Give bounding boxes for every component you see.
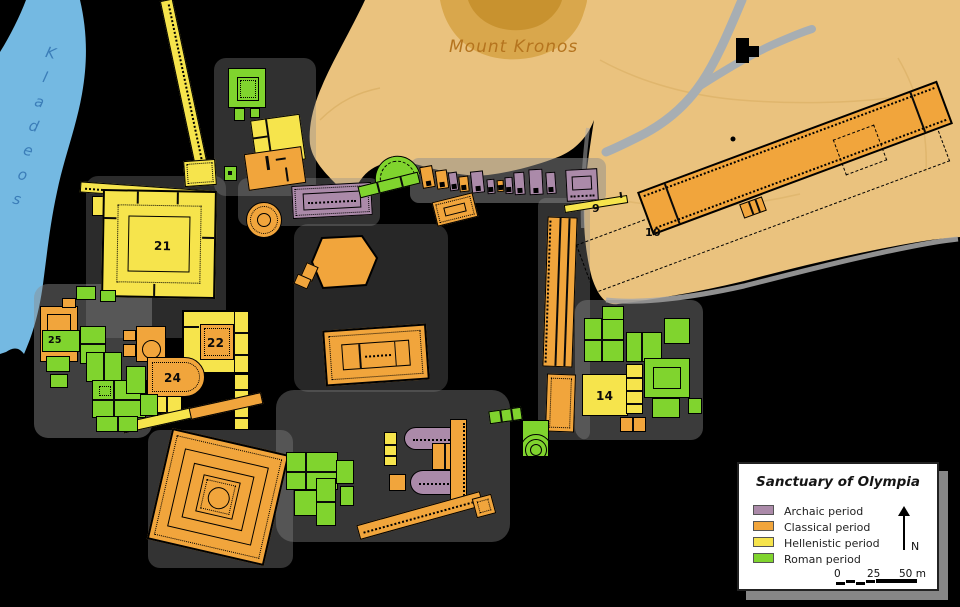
roman-ruin (336, 460, 354, 484)
scale-bar-wavy (836, 582, 845, 585)
archaic-label: Archaic period (784, 505, 863, 518)
roman-swatch (753, 553, 774, 563)
philippeion (246, 202, 282, 238)
building-22-number: 22 (207, 337, 224, 349)
kladeos-baths (86, 352, 122, 382)
small-hall (384, 432, 397, 466)
echo-stoa (542, 217, 577, 368)
roman-label: Roman period (784, 553, 861, 566)
treasury (496, 180, 504, 193)
north-roman-annex (250, 108, 260, 118)
se-roman-rooms (602, 306, 624, 320)
roman-ruin (46, 356, 70, 372)
north-label: N (911, 540, 919, 553)
treasury (545, 172, 557, 195)
roman-ruin (340, 486, 354, 506)
se-roman-hall (644, 358, 690, 398)
se-roman-rooms (584, 318, 624, 362)
southeast-building (545, 374, 576, 433)
roman-ruin (50, 374, 68, 388)
small-ruin (62, 298, 76, 308)
stadium-marker-dot (731, 137, 736, 142)
stadium-track-number: 10 (645, 227, 661, 238)
north-roman-building (228, 68, 266, 108)
scale-tick-0: 0 (834, 568, 841, 580)
building-25: 25 (42, 330, 80, 352)
bath-annex (123, 330, 136, 341)
roman-ruin (96, 416, 138, 432)
se-orange-annex (620, 417, 646, 432)
treasury (513, 172, 526, 196)
olympia-site-plan: Mount Kronos Kladeos (0, 0, 960, 607)
building-25-number: 25 (48, 336, 62, 346)
roman-ruin (126, 366, 146, 394)
se-roman-rooms (664, 318, 690, 344)
treasury (458, 176, 470, 193)
stadium-entrance-number: 9 (592, 203, 600, 214)
scale-bar-wavy (846, 580, 855, 583)
bouleuterion-east-stoa (450, 419, 467, 503)
gymnasium-corner-block (183, 159, 217, 187)
north-arrow (903, 514, 905, 550)
roman-ruin (140, 394, 158, 416)
classical-label: Classical period (784, 521, 870, 534)
north-arrow-head (898, 506, 910, 516)
small-roman-ruin (224, 166, 237, 181)
legend-panel: Sanctuary of Olympia Archaic period Clas… (737, 462, 939, 591)
treasury (486, 179, 495, 195)
building-14: 14 (582, 374, 628, 416)
palaestra: 21 (101, 189, 217, 299)
small-square-building (389, 474, 406, 491)
building-14-number: 14 (596, 390, 613, 402)
roman-ruin (100, 290, 116, 302)
palaestra-number: 21 (154, 240, 172, 252)
scale-bar-wavy (856, 582, 865, 585)
classical-swatch (753, 521, 774, 531)
treasury (504, 177, 513, 195)
se-roman-rooms (652, 398, 680, 418)
bath-annex (123, 344, 136, 357)
roman-ruin (76, 286, 96, 300)
roman-ruin (316, 478, 336, 526)
treasury (528, 169, 543, 196)
scale-bar-wavy (866, 580, 875, 583)
scale-bar-solid (876, 579, 917, 583)
building-14-east-wing (626, 364, 643, 414)
building-24: 24 (147, 357, 205, 397)
se-roman-rooms (688, 398, 702, 414)
pelopion (312, 236, 377, 288)
hellenistic-swatch (753, 537, 774, 547)
archaic-swatch (753, 505, 774, 515)
north-roman-annex (234, 108, 245, 121)
mount-kronos-label: Mount Kronos (449, 37, 578, 57)
temple-of-zeus (322, 323, 430, 386)
hellenistic-label: Hellenistic period (784, 537, 880, 550)
treasury (470, 170, 485, 193)
building-24-number: 24 (164, 372, 181, 384)
apsidal-bath (522, 420, 549, 457)
legend-title: Sanctuary of Olympia (739, 474, 937, 490)
treasury-large (565, 168, 599, 202)
